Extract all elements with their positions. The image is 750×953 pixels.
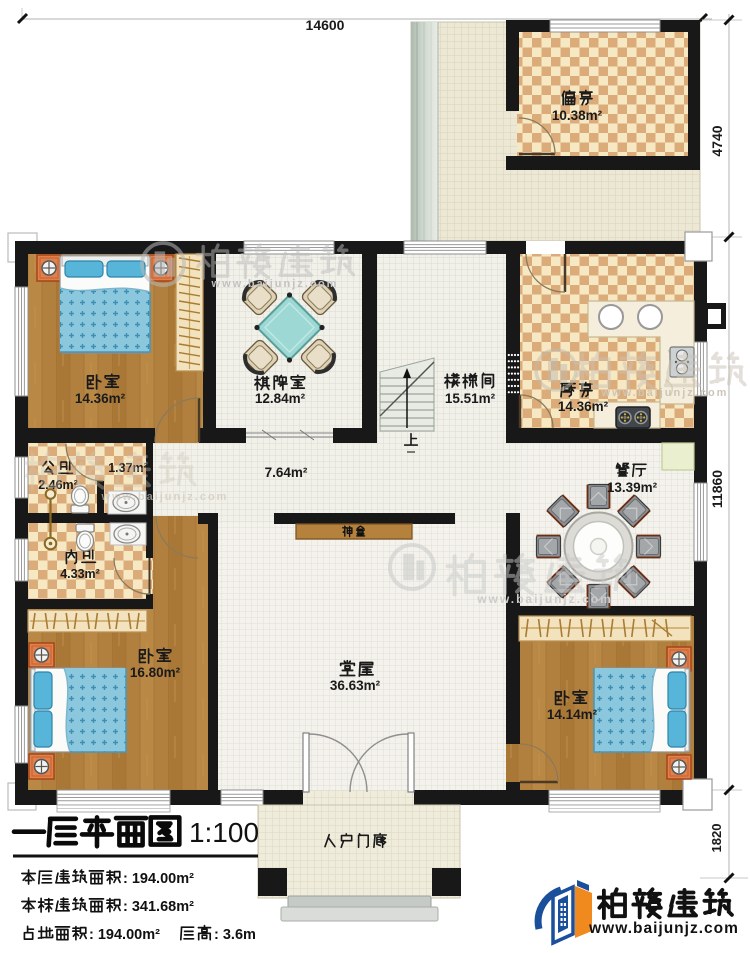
svg-text:: 194.00m²: : 194.00m² (89, 927, 160, 943)
svg-text:10.38m²: 10.38m² (552, 108, 603, 123)
svg-text:1:100: 1:100 (189, 817, 259, 848)
svg-text:14.14m²: 14.14m² (547, 707, 598, 722)
svg-text:14600: 14600 (306, 17, 345, 33)
svg-text:: 3.6m: : 3.6m (214, 927, 256, 943)
svg-text:www.baijunjz.com: www.baijunjz.com (101, 491, 229, 503)
svg-text:1820: 1820 (709, 824, 724, 853)
svg-text:15.51m²: 15.51m² (445, 391, 496, 406)
svg-text:16.80m²: 16.80m² (130, 665, 181, 680)
svg-text:4740: 4740 (709, 125, 725, 156)
svg-text:12.84m²: 12.84m² (255, 391, 306, 406)
svg-text:4.33m²: 4.33m² (60, 567, 100, 581)
svg-text:: 194.00m²: : 194.00m² (123, 871, 194, 887)
svg-text:36.63m²: 36.63m² (330, 678, 381, 693)
svg-text:14.36m²: 14.36m² (558, 399, 609, 414)
svg-text:14.36m²: 14.36m² (75, 391, 126, 406)
svg-text:www.baijunjz.com: www.baijunjz.com (588, 920, 739, 937)
svg-text:www.baijunjz.com: www.baijunjz.com (211, 278, 339, 290)
svg-text:www.baijunjz.com: www.baijunjz.com (476, 592, 613, 606)
svg-text:: 341.68m²: : 341.68m² (123, 899, 194, 915)
svg-text:www.baijunjz.com: www.baijunjz.com (601, 387, 729, 399)
svg-text:7.64m²: 7.64m² (265, 465, 308, 480)
svg-text:13.39m²: 13.39m² (607, 480, 658, 495)
svg-text:11860: 11860 (709, 470, 725, 508)
